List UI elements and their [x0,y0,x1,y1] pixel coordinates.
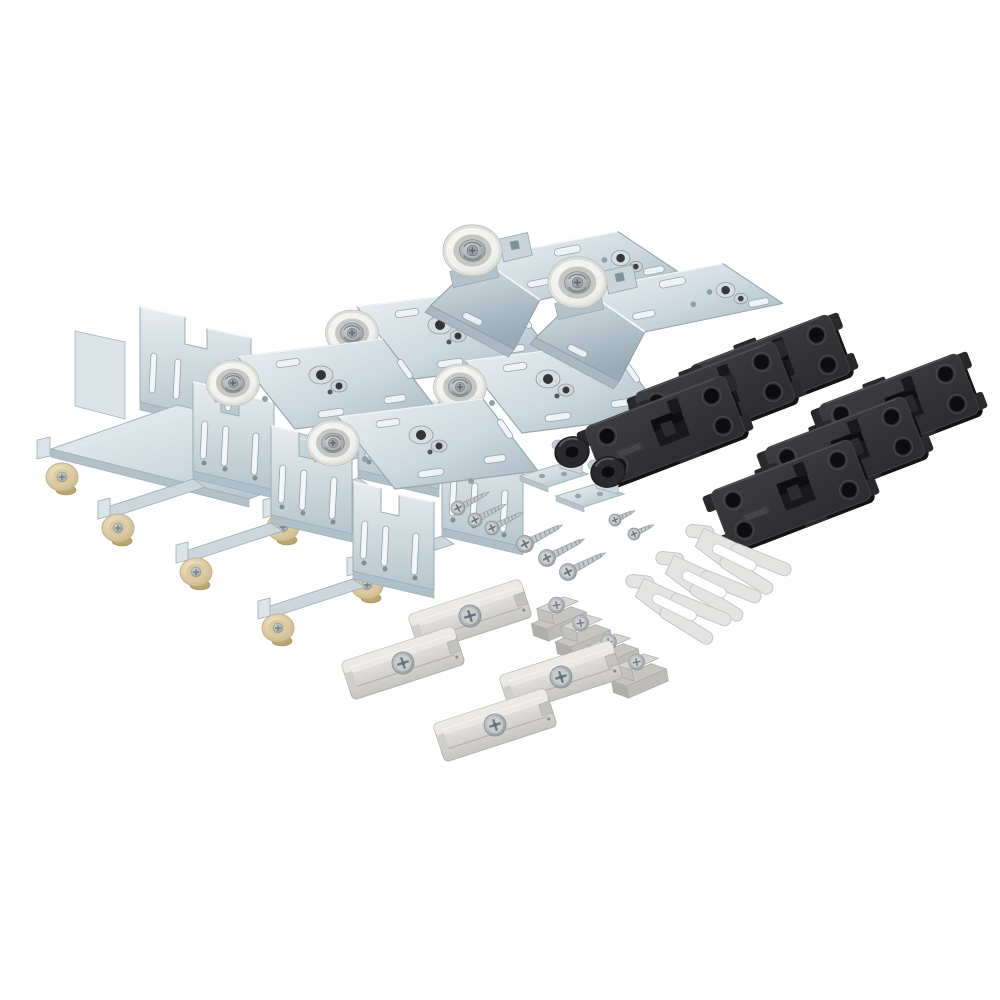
hardware-kit-illustration: Bottom guide channel bracket with nylon … [0,0,1000,1000]
product-photo: Bottom guide channel bracket with nylon … [0,0,1000,1000]
